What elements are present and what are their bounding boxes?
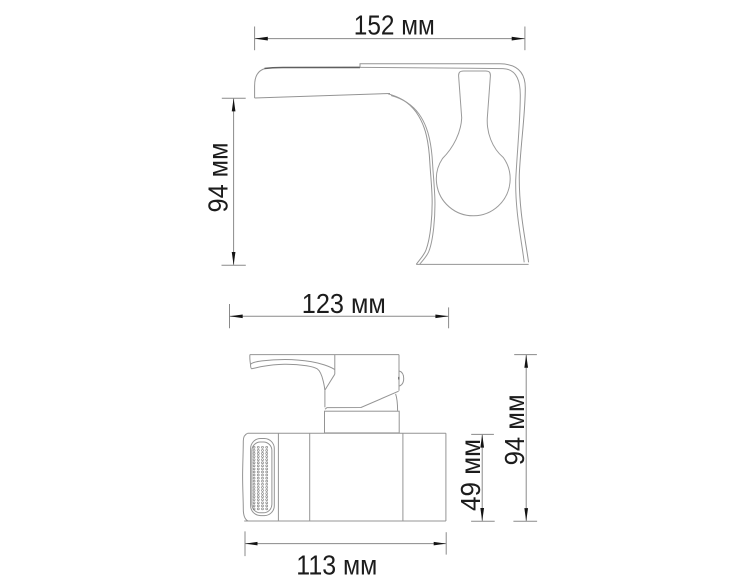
svg-text:94 мм: 94 мм (499, 394, 530, 465)
svg-text:123 мм: 123 мм (302, 288, 386, 319)
svg-text:152 мм: 152 мм (354, 10, 435, 41)
svg-text:94 мм: 94 мм (202, 143, 233, 213)
svg-text:113 мм: 113 мм (296, 549, 377, 580)
svg-text:49 мм: 49 мм (455, 439, 486, 511)
